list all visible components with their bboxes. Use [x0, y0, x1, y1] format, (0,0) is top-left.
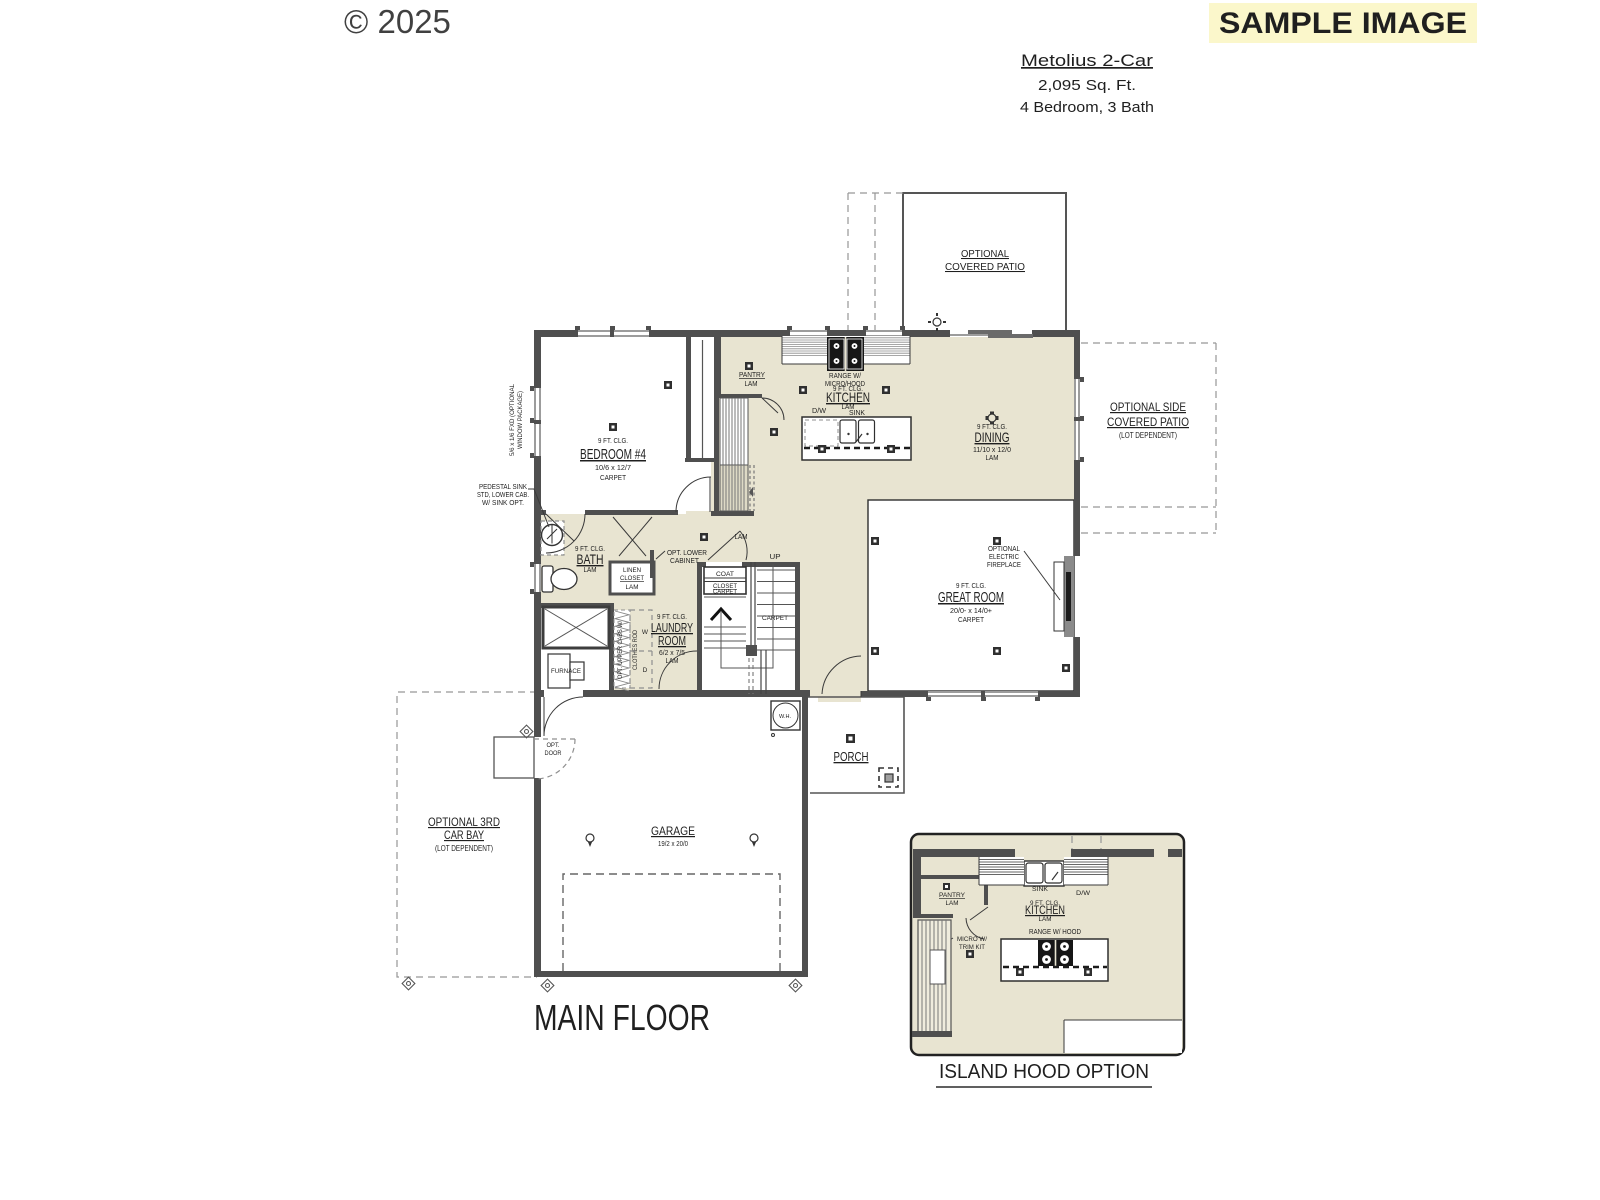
svg-text:PANTRY: PANTRY: [739, 372, 765, 379]
svg-text:RANGE W/ HOOD: RANGE W/ HOOD: [1029, 929, 1081, 936]
svg-text:2,095 Sq. Ft.: 2,095 Sq. Ft.: [1038, 77, 1136, 94]
svg-text:MAIN FLOOR: MAIN FLOOR: [534, 997, 710, 1038]
svg-text:CARPET: CARPET: [600, 473, 626, 482]
svg-text:9 FT. CLG.: 9 FT. CLG.: [598, 436, 628, 445]
svg-text:OPTIONAL SIDE: OPTIONAL SIDE: [1110, 400, 1186, 414]
svg-text:LAM: LAM: [986, 455, 999, 462]
svg-text:SINK: SINK: [1032, 886, 1049, 893]
svg-text:D/W: D/W: [812, 408, 826, 415]
svg-text:4 Bedroom, 3 Bath: 4 Bedroom, 3 Bath: [1020, 99, 1154, 116]
svg-text:6/2 x 7/5: 6/2 x 7/5: [659, 650, 685, 657]
svg-text:LAM: LAM: [735, 534, 748, 541]
svg-text:OPTIONAL: OPTIONAL: [988, 546, 1020, 553]
svg-text:PEDESTAL SINK: PEDESTAL SINK: [479, 484, 527, 491]
svg-text:LINEN: LINEN: [623, 567, 641, 574]
svg-text:(LOT DEPENDENT): (LOT DEPENDENT): [1119, 431, 1177, 440]
svg-text:FURNACE: FURNACE: [551, 668, 582, 675]
svg-text:OPT.: OPT.: [547, 742, 560, 749]
svg-text:COAT: COAT: [716, 571, 734, 578]
svg-text:D: D: [643, 667, 648, 674]
svg-text:LAM: LAM: [745, 381, 758, 388]
svg-text:CARPET: CARPET: [713, 590, 737, 596]
svg-text:KITCHEN: KITCHEN: [826, 389, 870, 405]
svg-text:SINK: SINK: [849, 410, 865, 417]
svg-text:W.H.: W.H.: [779, 714, 791, 720]
svg-text:UP: UP: [770, 552, 781, 561]
svg-text:CABINET: CABINET: [670, 558, 700, 565]
svg-text:Metolius 2-Car: Metolius 2-Car: [1021, 51, 1153, 70]
svg-text:DOOR: DOOR: [545, 750, 562, 757]
svg-text:(LOT DEPENDENT): (LOT DEPENDENT): [435, 844, 493, 853]
svg-text:FIREPLACE: FIREPLACE: [987, 562, 1021, 569]
svg-text:LAM: LAM: [946, 900, 959, 907]
svg-text:CARPET: CARPET: [958, 615, 984, 624]
svg-text:CARPET: CARPET: [762, 615, 788, 622]
svg-text:COVERED PATIO: COVERED PATIO: [1107, 415, 1189, 429]
svg-text:LAM: LAM: [666, 658, 679, 665]
svg-text:CAR BAY: CAR BAY: [444, 830, 484, 842]
svg-text:BATH: BATH: [577, 551, 604, 567]
svg-text:LAM: LAM: [626, 584, 639, 591]
svg-text:DINING: DINING: [975, 429, 1010, 445]
svg-text:W: W: [642, 629, 649, 636]
svg-text:PANTRY: PANTRY: [939, 892, 966, 899]
svg-text:11/10 x 12/0: 11/10 x 12/0: [973, 447, 1011, 454]
svg-text:ELECTRIC: ELECTRIC: [989, 554, 1019, 561]
svg-text:ROOM: ROOM: [658, 633, 686, 648]
svg-text:RANGE W/: RANGE W/: [829, 373, 861, 380]
svg-text:© 2025: © 2025: [344, 3, 451, 40]
svg-text:OPT. LOWER: OPT. LOWER: [667, 550, 707, 557]
svg-text:OPTIONAL 3RD: OPTIONAL 3RD: [428, 817, 500, 829]
svg-text:BEDROOM #4: BEDROOM #4: [580, 446, 646, 463]
svg-text:COVERED PATIO: COVERED PATIO: [945, 261, 1025, 273]
svg-text:19/2 x 20/0: 19/2 x 20/0: [658, 841, 688, 848]
svg-text:10/6 x 12/7: 10/6 x 12/7: [595, 463, 631, 472]
svg-text:SAMPLE IMAGE: SAMPLE IMAGE: [1219, 7, 1467, 40]
svg-text:LAM: LAM: [1039, 916, 1052, 923]
svg-text:PORCH: PORCH: [834, 749, 869, 764]
svg-text:CLOTHES ROD: CLOTHES ROD: [633, 629, 639, 670]
svg-text:GREAT ROOM: GREAT ROOM: [938, 589, 1004, 606]
svg-text:5/6 x 1/6 FXD (OPTIONAL: 5/6 x 1/6 FXD (OPTIONAL: [509, 384, 516, 456]
svg-text:MICRO W/: MICRO W/: [957, 936, 987, 943]
svg-text:KITCHEN: KITCHEN: [1025, 903, 1065, 917]
svg-text:STD, LOWER CAB.: STD, LOWER CAB.: [477, 492, 529, 499]
svg-text:D/W: D/W: [1076, 890, 1091, 897]
svg-text:OPTIONAL: OPTIONAL: [961, 248, 1009, 260]
svg-text:GARAGE: GARAGE: [651, 824, 695, 838]
svg-text:20/0- x 14/0+: 20/0- x 14/0+: [950, 606, 993, 615]
svg-text:OPT. UPPER CABS W/: OPT. UPPER CABS W/: [618, 621, 624, 679]
svg-text:TRIM KIT: TRIM KIT: [959, 944, 985, 951]
svg-text:LAM: LAM: [584, 567, 597, 574]
svg-text:WINDOW PACKAGE): WINDOW PACKAGE): [517, 391, 524, 449]
svg-text:CLOSET: CLOSET: [620, 575, 644, 582]
svg-text:W/ SINK OPT.: W/ SINK OPT.: [482, 500, 524, 507]
svg-text:ISLAND HOOD OPTION: ISLAND HOOD OPTION: [939, 1061, 1149, 1083]
